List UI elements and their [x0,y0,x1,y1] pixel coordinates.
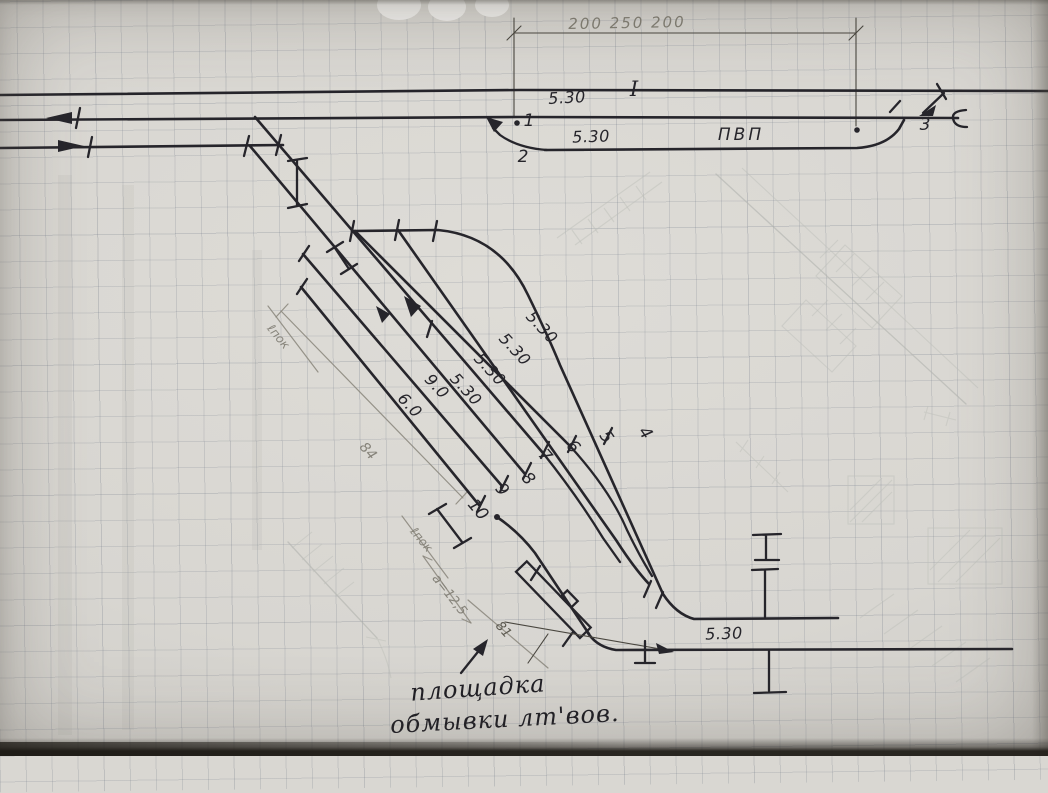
switch-number: 3 [920,115,931,135]
spacing-label: 5.30 [572,126,610,146]
bottom-dimension-line [505,622,666,650]
track-number: 9 [491,479,513,500]
spacing-label: 5.30 [548,87,587,108]
bottom-right-details [461,534,786,693]
track-7-curve [543,453,620,562]
pencil-ghost-left-smudges [58,175,262,735]
track-number: 10 [463,495,492,524]
switch-point-dot [514,120,520,126]
joint-tie-symbol [288,158,471,548]
caption-line-1: площадка [409,669,546,706]
track-3-left-line [0,145,283,148]
yard-track-8-line [250,146,525,474]
pvp-label: ПВП [718,125,764,145]
track-number: 4 [634,423,657,443]
dimension-extension-lines [514,18,856,126]
track-I-line [0,90,1048,95]
track-number: 5 [595,427,618,447]
pencil-dim-label: ℓпок [264,321,293,352]
pencil-ghost-right-band [716,168,1002,584]
track-scheme-sketch: 200 250 200 I 5.30 5.30 1 2 3 ПВП 5.30 5… [0,0,1048,756]
yard-spacing-label: 5.30 [495,329,535,369]
pencil-ghost-top-right [557,172,662,245]
post-marker-symbol [752,534,786,693]
switch-number: 1 [524,111,535,131]
top-dimension [507,18,863,126]
dim-line-84 [281,311,463,498]
pencil-ghost-bottom-right [860,594,990,682]
switch-arrow-icon [486,117,503,132]
track-10-extension-line [497,517,589,634]
pencil-dim-label: 84 [356,439,380,463]
yard-track-10-line [301,287,479,505]
left-arrow-icon [46,112,72,124]
pencil-dim-label: a=12,5 [429,572,470,619]
yard-spacing-label: 5.30 [470,349,510,389]
dimension-arrow-icon [656,643,674,654]
right-arrow-icon [58,140,84,152]
yard-spacing-label: 5.30 [522,307,562,347]
track-2-line [0,117,958,120]
labels: 200 250 200 I 5.30 5.30 1 2 3 ПВП 5.30 5… [264,13,931,739]
switch-point-dot [854,127,860,133]
pencil-dim-label: 81 [492,619,514,641]
track-6-curve [570,446,652,576]
track-number: 7 [534,445,556,466]
pencil-ghost-bottom-center [288,532,391,678]
yard-track-6-line [355,231,570,446]
whiteout-blobs [377,0,509,21]
yard-tracks [250,117,1012,650]
switch-number: 2 [518,147,529,167]
track-I-label: I [629,77,639,101]
bottom-spacing-label: 5.30 [705,623,743,643]
track-number: 8 [517,468,539,489]
top-dimension-label: 200 250 200 [568,13,686,33]
